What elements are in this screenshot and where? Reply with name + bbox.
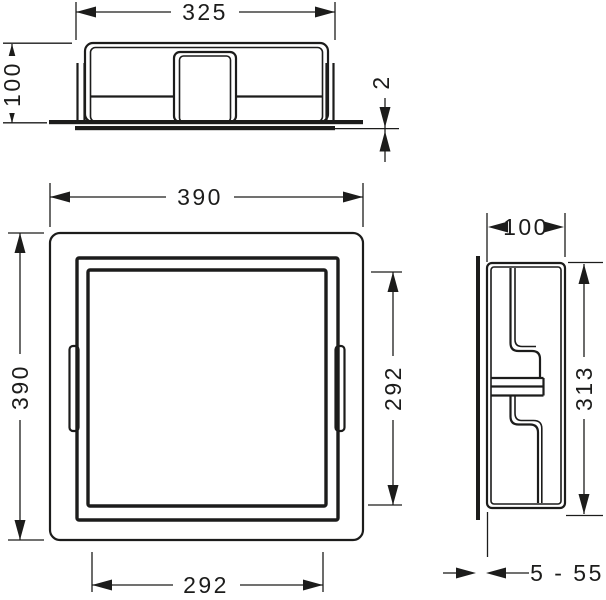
dim-top-width: 325	[76, 0, 335, 40]
dimension-label-292-h: 292	[183, 572, 229, 598]
dim-front-height: 390	[7, 233, 44, 540]
front-view	[50, 233, 363, 540]
arrow-down	[579, 494, 590, 514]
arrow-left	[50, 192, 70, 203]
dimension-label-313: 313	[571, 365, 597, 411]
dimension-label-292-v: 292	[380, 365, 406, 411]
dim-trim-thickness: 2	[368, 74, 394, 162]
top-view	[49, 43, 399, 130]
arrow-down	[380, 107, 391, 128]
dim-tile-range: 5 - 55	[443, 560, 604, 586]
dim-front-width: 390	[50, 183, 363, 227]
dimension-label-390-h: 390	[177, 184, 223, 210]
arrow-left	[486, 568, 506, 579]
arrow-left	[76, 7, 96, 18]
dim-front-inner-height: 292	[368, 272, 406, 505]
niche-body-inner-wall	[91, 48, 323, 122]
dim-top-height: 100	[0, 43, 72, 123]
arrow-right	[456, 568, 476, 579]
dimension-label-2: 2	[368, 74, 394, 89]
niche-opening	[88, 270, 326, 506]
center-boss-outline	[174, 52, 236, 122]
technical-drawing: 325 100 2 390	[0, 0, 606, 600]
flange-plate	[75, 126, 335, 130]
dim-side-depth: 100	[487, 213, 565, 262]
arrow-right	[343, 192, 363, 203]
dimension-label-390-v: 390	[7, 364, 33, 410]
arrow-up	[579, 264, 590, 284]
arrow-up	[15, 233, 26, 253]
arrow-up	[388, 272, 399, 292]
tile-line	[476, 256, 480, 520]
center-boss-inner	[180, 56, 231, 122]
niche-body-front	[77, 258, 338, 520]
trim-plate	[49, 120, 363, 124]
arrow-right	[303, 580, 323, 591]
arrow-up	[380, 131, 391, 152]
dim-side-height: 313	[566, 263, 603, 516]
dimension-label-325: 325	[182, 0, 228, 25]
dim-front-inner-width: 292	[92, 552, 323, 598]
dimension-label-100-side: 100	[503, 214, 549, 240]
arrow-down	[388, 485, 399, 505]
dimension-label-5-55: 5 - 55	[530, 560, 604, 586]
side-view	[476, 256, 565, 557]
trim-frame-outline	[50, 233, 363, 540]
arrow-left	[92, 580, 112, 591]
arrow-down	[15, 520, 26, 540]
drawing-canvas: 325 100 2 390	[0, 0, 606, 600]
niche-body-outline	[85, 43, 328, 122]
dimension-label-100-top: 100	[0, 61, 25, 107]
arrow-right	[315, 7, 335, 18]
cavity-profile-upper-inner	[515, 268, 536, 347]
